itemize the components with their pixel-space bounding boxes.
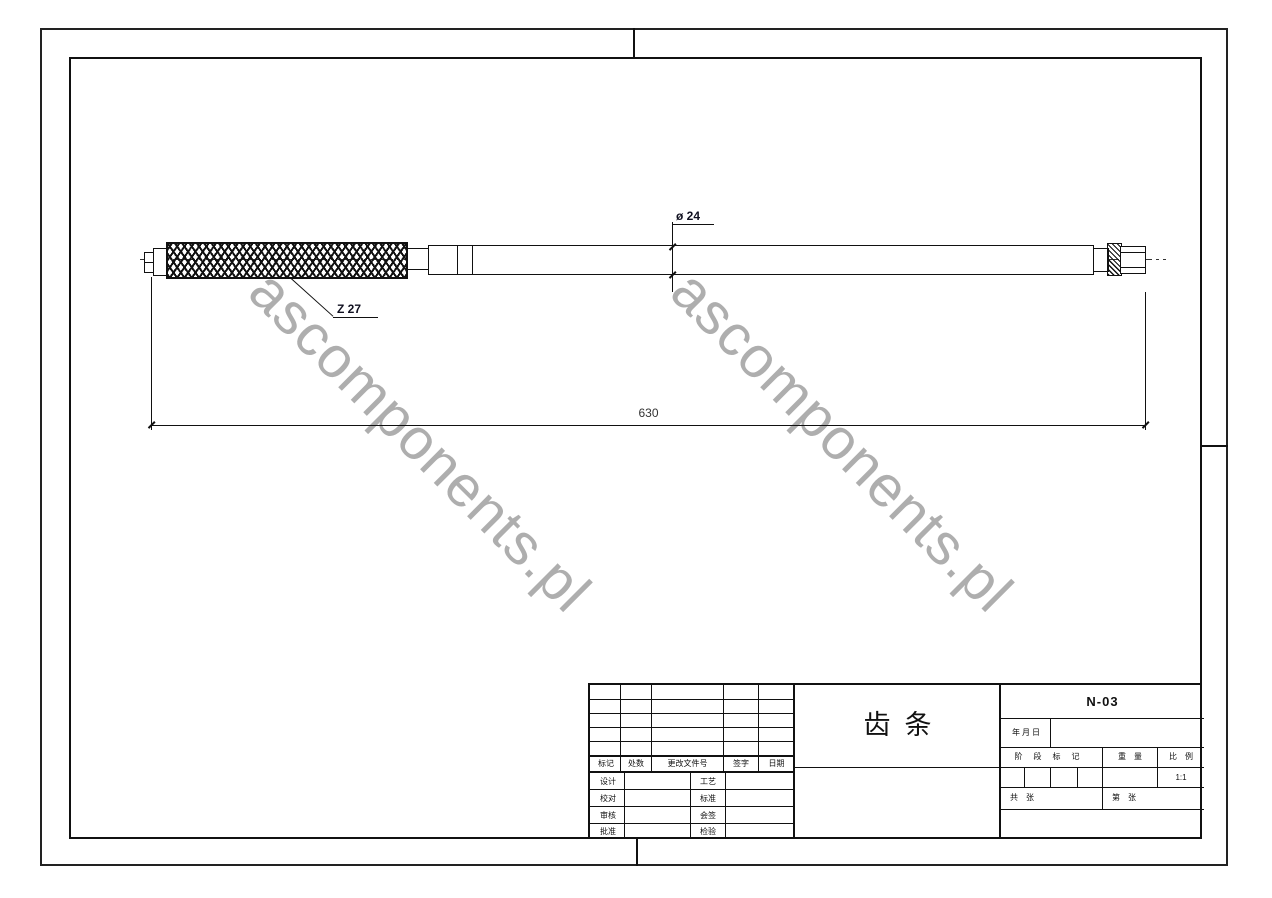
sig-approve: 批准	[593, 828, 623, 836]
title-block: 标记 处数 更改文件号 签字 日期 设计 工艺 校对 标准 审核 会签 批准 检…	[588, 683, 1202, 839]
tb-line	[1001, 718, 1204, 719]
collar-line	[457, 245, 458, 275]
drawing-number: N-03	[1001, 694, 1204, 709]
tb-line	[590, 823, 794, 824]
tb-line	[1001, 809, 1204, 810]
rack-teeth-section	[166, 242, 408, 279]
step-section	[407, 248, 429, 270]
sig-inspect: 检验	[693, 828, 723, 836]
sig-check: 校对	[593, 795, 623, 803]
tb-line	[1024, 767, 1025, 787]
thread-line	[1121, 267, 1145, 268]
tb-line	[590, 789, 794, 790]
tb-line	[723, 685, 724, 773]
tb-line	[690, 773, 691, 837]
diameter-dim-text: ø 24	[676, 209, 700, 223]
tb-line	[1050, 767, 1051, 787]
shaft-body	[428, 245, 1094, 275]
sheets-total-label: 共 张	[1010, 794, 1096, 802]
rev-header-mark: 标记	[592, 760, 620, 768]
sig-design: 设计	[593, 778, 623, 786]
centering-mark-right	[1202, 445, 1228, 447]
tb-line	[651, 685, 652, 773]
scale-label: 比例	[1159, 753, 1203, 761]
date-cell-label: 年 月 日	[1003, 729, 1049, 737]
tb-line	[590, 806, 794, 807]
left-cap	[153, 248, 167, 276]
rev-header-date: 日期	[760, 760, 793, 768]
tb-line	[758, 685, 759, 773]
diameter-dim-shelf	[672, 224, 714, 225]
centering-mark-bottom	[636, 839, 638, 866]
rev-header-docno: 更改文件号	[653, 760, 722, 768]
drawing-sheet: ascomponents.pl ascomponents.pl ø 24 Z 2…	[0, 0, 1272, 898]
tb-line	[1157, 747, 1158, 787]
collar-line	[472, 245, 473, 275]
threaded-end	[1120, 246, 1146, 274]
rev-header-count: 处数	[622, 760, 650, 768]
length-dim-text: 630	[151, 406, 1146, 420]
sig-countersign: 会签	[693, 812, 723, 820]
length-dim-line	[151, 425, 1146, 426]
tb-line	[1102, 747, 1103, 809]
stage-mark-label: 阶段标记	[1005, 753, 1100, 761]
tb-line	[725, 773, 726, 837]
tb-line	[1077, 767, 1078, 787]
sig-process: 工艺	[693, 778, 723, 786]
centering-mark-top	[633, 28, 635, 57]
diameter-dim-line	[672, 222, 673, 292]
tb-line	[624, 773, 625, 837]
sheet-no-label: 第 张	[1112, 794, 1198, 802]
tb-line	[620, 685, 621, 773]
teeth-count-text: Z 27	[337, 302, 361, 316]
weight-label: 重量	[1104, 753, 1156, 761]
part-name: 齿条	[795, 703, 1000, 742]
sig-standard: 标准	[693, 795, 723, 803]
tb-line	[795, 767, 1000, 768]
tb-line	[1050, 718, 1051, 747]
rev-header-sign: 签字	[725, 760, 757, 768]
teeth-leader-shelf	[333, 317, 378, 318]
scale-value: 1:1	[1159, 773, 1203, 782]
sig-audit: 审核	[593, 812, 623, 820]
thread-line	[1121, 252, 1145, 253]
